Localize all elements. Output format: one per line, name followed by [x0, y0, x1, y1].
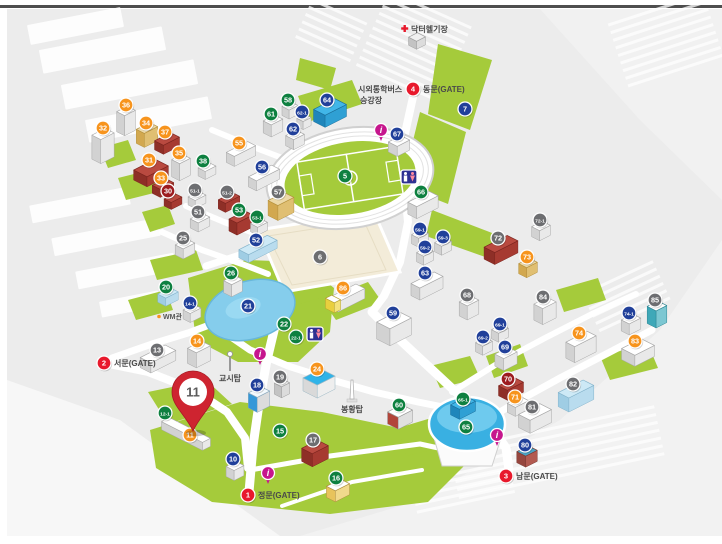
svg-text:59-2: 59-2 — [420, 245, 430, 251]
svg-text:정문(GATE): 정문(GATE) — [258, 490, 300, 500]
svg-text:동문(GATE): 동문(GATE) — [423, 85, 465, 94]
svg-text:59: 59 — [389, 308, 397, 317]
svg-text:53: 53 — [235, 205, 243, 214]
svg-text:15: 15 — [276, 426, 284, 435]
svg-text:58: 58 — [284, 95, 292, 104]
svg-text:24: 24 — [313, 364, 322, 373]
svg-text:69-2: 69-2 — [478, 335, 488, 341]
map-canvas: WM관교시탑봉황탑닥터헬기장시외통학버스승강장32363437313533303… — [0, 0, 722, 544]
top-frame-line — [0, 5, 722, 8]
svg-text:51: 51 — [194, 207, 202, 216]
svg-text:56: 56 — [258, 162, 266, 171]
svg-text:18: 18 — [253, 380, 261, 389]
svg-text:WM관: WM관 — [163, 312, 182, 321]
svg-text:19: 19 — [276, 372, 284, 381]
svg-text:74: 74 — [575, 328, 584, 337]
svg-text:1: 1 — [246, 491, 250, 500]
svg-text:승강장: 승강장 — [360, 95, 383, 105]
toilet-icon[interactable] — [401, 170, 417, 184]
svg-text:83: 83 — [631, 336, 639, 345]
svg-text:10: 10 — [229, 454, 237, 463]
svg-text:62: 62 — [289, 124, 297, 133]
svg-text:69: 69 — [501, 342, 509, 351]
svg-text:66: 66 — [417, 187, 425, 196]
svg-text:38: 38 — [199, 156, 207, 165]
svg-text:82: 82 — [569, 379, 577, 388]
svg-text:7: 7 — [463, 104, 467, 113]
svg-text:72: 72 — [494, 233, 502, 242]
svg-text:85: 85 — [651, 295, 659, 304]
svg-text:84: 84 — [539, 292, 548, 301]
svg-text:14: 14 — [193, 336, 202, 345]
svg-text:36: 36 — [122, 100, 130, 109]
svg-text:55: 55 — [235, 138, 243, 147]
svg-text:17: 17 — [309, 435, 317, 444]
svg-text:67: 67 — [393, 129, 401, 138]
svg-text:12-1: 12-1 — [160, 411, 170, 417]
svg-text:13: 13 — [153, 345, 161, 354]
svg-text:35: 35 — [175, 148, 183, 157]
svg-text:80: 80 — [521, 440, 529, 449]
svg-text:32: 32 — [99, 123, 107, 132]
svg-text:81: 81 — [528, 402, 536, 411]
svg-text:37: 37 — [161, 127, 169, 136]
svg-text:5: 5 — [343, 171, 347, 180]
svg-text:16: 16 — [332, 473, 340, 482]
svg-text:닥터헬기장: 닥터헬기장 — [411, 24, 448, 34]
svg-text:22-1: 22-1 — [291, 335, 301, 341]
svg-text:봉황탑: 봉황탑 — [341, 404, 364, 414]
svg-text:3: 3 — [504, 472, 508, 481]
svg-text:61: 61 — [267, 109, 275, 118]
svg-text:26: 26 — [227, 268, 235, 277]
svg-text:25: 25 — [179, 233, 187, 242]
svg-text:31: 31 — [145, 155, 153, 164]
svg-text:74-1: 74-1 — [624, 311, 634, 317]
svg-text:11: 11 — [186, 385, 200, 400]
svg-text:교시탑: 교시탑 — [219, 373, 242, 383]
svg-text:69-1: 69-1 — [495, 322, 505, 328]
svg-text:53-1: 53-1 — [252, 215, 262, 221]
campus-map: WM관교시탑봉황탑닥터헬기장시외통학버스승강장32363437313533303… — [0, 0, 722, 544]
svg-text:57: 57 — [274, 187, 282, 196]
svg-text:71: 71 — [511, 392, 519, 401]
svg-text:62-1: 62-1 — [297, 110, 307, 116]
svg-text:2: 2 — [102, 359, 106, 368]
svg-text:남문(GATE): 남문(GATE) — [516, 471, 558, 481]
svg-text:51-1: 51-1 — [190, 188, 200, 194]
svg-text:22: 22 — [280, 319, 288, 328]
svg-text:21: 21 — [244, 301, 252, 310]
svg-text:86: 86 — [339, 283, 347, 292]
svg-text:51-2: 51-2 — [222, 190, 232, 196]
svg-text:73: 73 — [523, 252, 531, 261]
svg-text:33: 33 — [157, 173, 165, 182]
svg-text:14-1: 14-1 — [185, 301, 195, 307]
svg-text:59-1: 59-1 — [415, 227, 425, 233]
svg-text:52: 52 — [252, 235, 260, 244]
svg-text:59-3: 59-3 — [438, 235, 448, 241]
svg-text:서문(GATE): 서문(GATE) — [114, 358, 156, 368]
svg-text:65-1: 65-1 — [458, 397, 468, 403]
svg-text:34: 34 — [142, 118, 151, 127]
svg-text:72-1: 72-1 — [535, 218, 545, 224]
svg-text:68: 68 — [463, 290, 471, 299]
toilet-icon[interactable] — [307, 327, 323, 341]
svg-text:20: 20 — [162, 282, 170, 291]
svg-text:65: 65 — [462, 422, 470, 431]
svg-text:64: 64 — [323, 95, 332, 104]
svg-text:63: 63 — [421, 268, 429, 277]
svg-text:6: 6 — [318, 252, 322, 261]
svg-text:시외통학버스: 시외통학버스 — [358, 84, 403, 94]
svg-text:70: 70 — [504, 374, 512, 383]
svg-text:30: 30 — [164, 186, 172, 195]
svg-text:60: 60 — [395, 400, 403, 409]
